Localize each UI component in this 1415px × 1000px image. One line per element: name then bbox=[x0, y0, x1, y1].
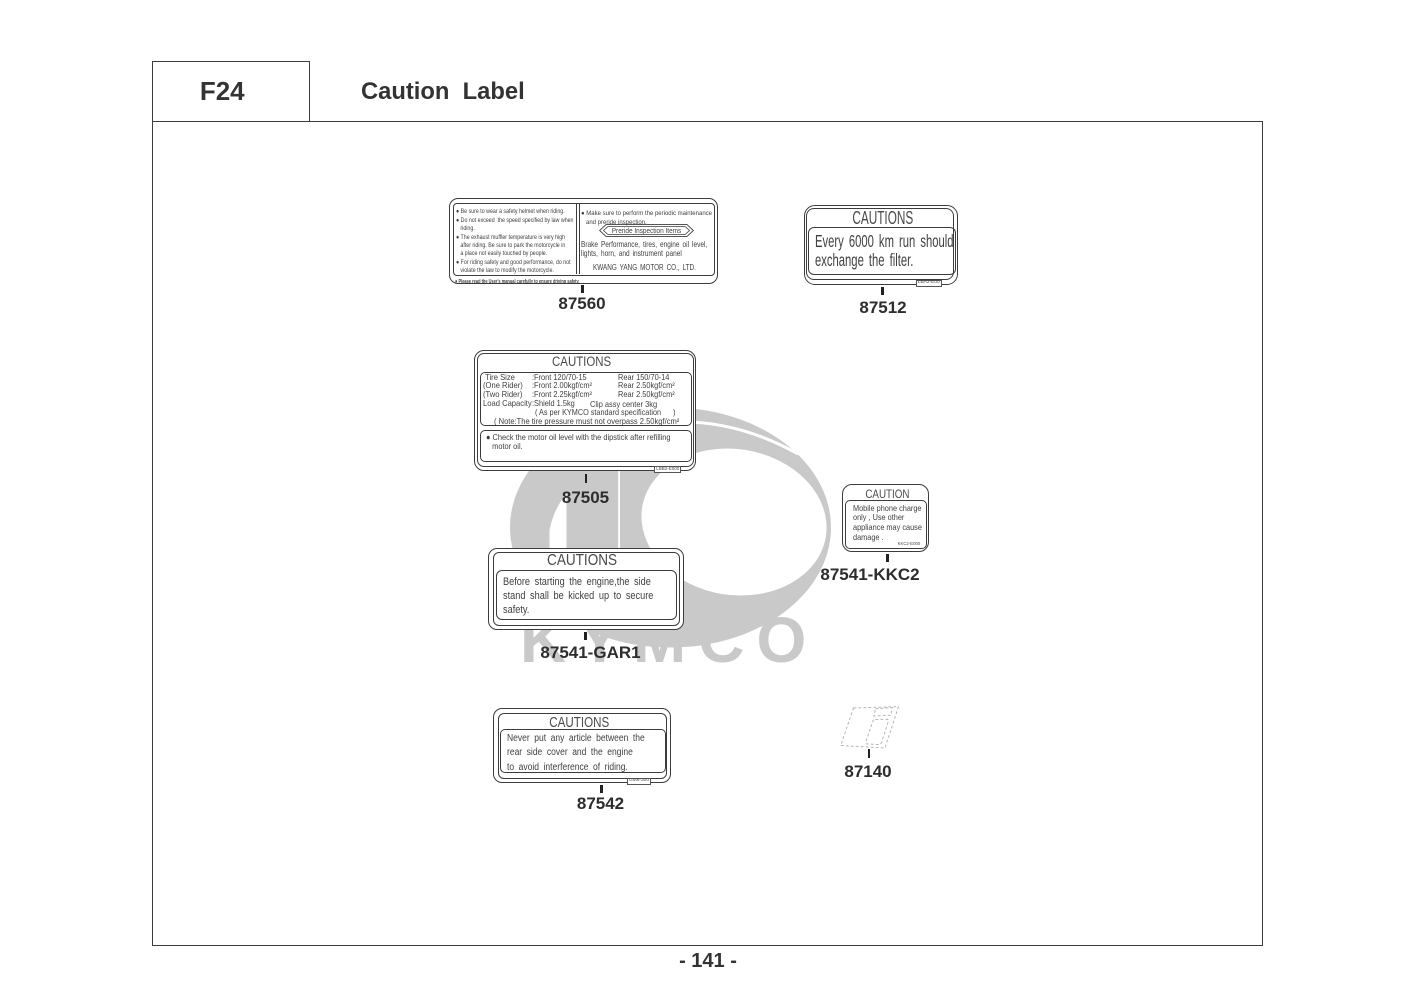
svg-text:Preride Inspection Items: Preride Inspection Items bbox=[612, 226, 682, 235]
